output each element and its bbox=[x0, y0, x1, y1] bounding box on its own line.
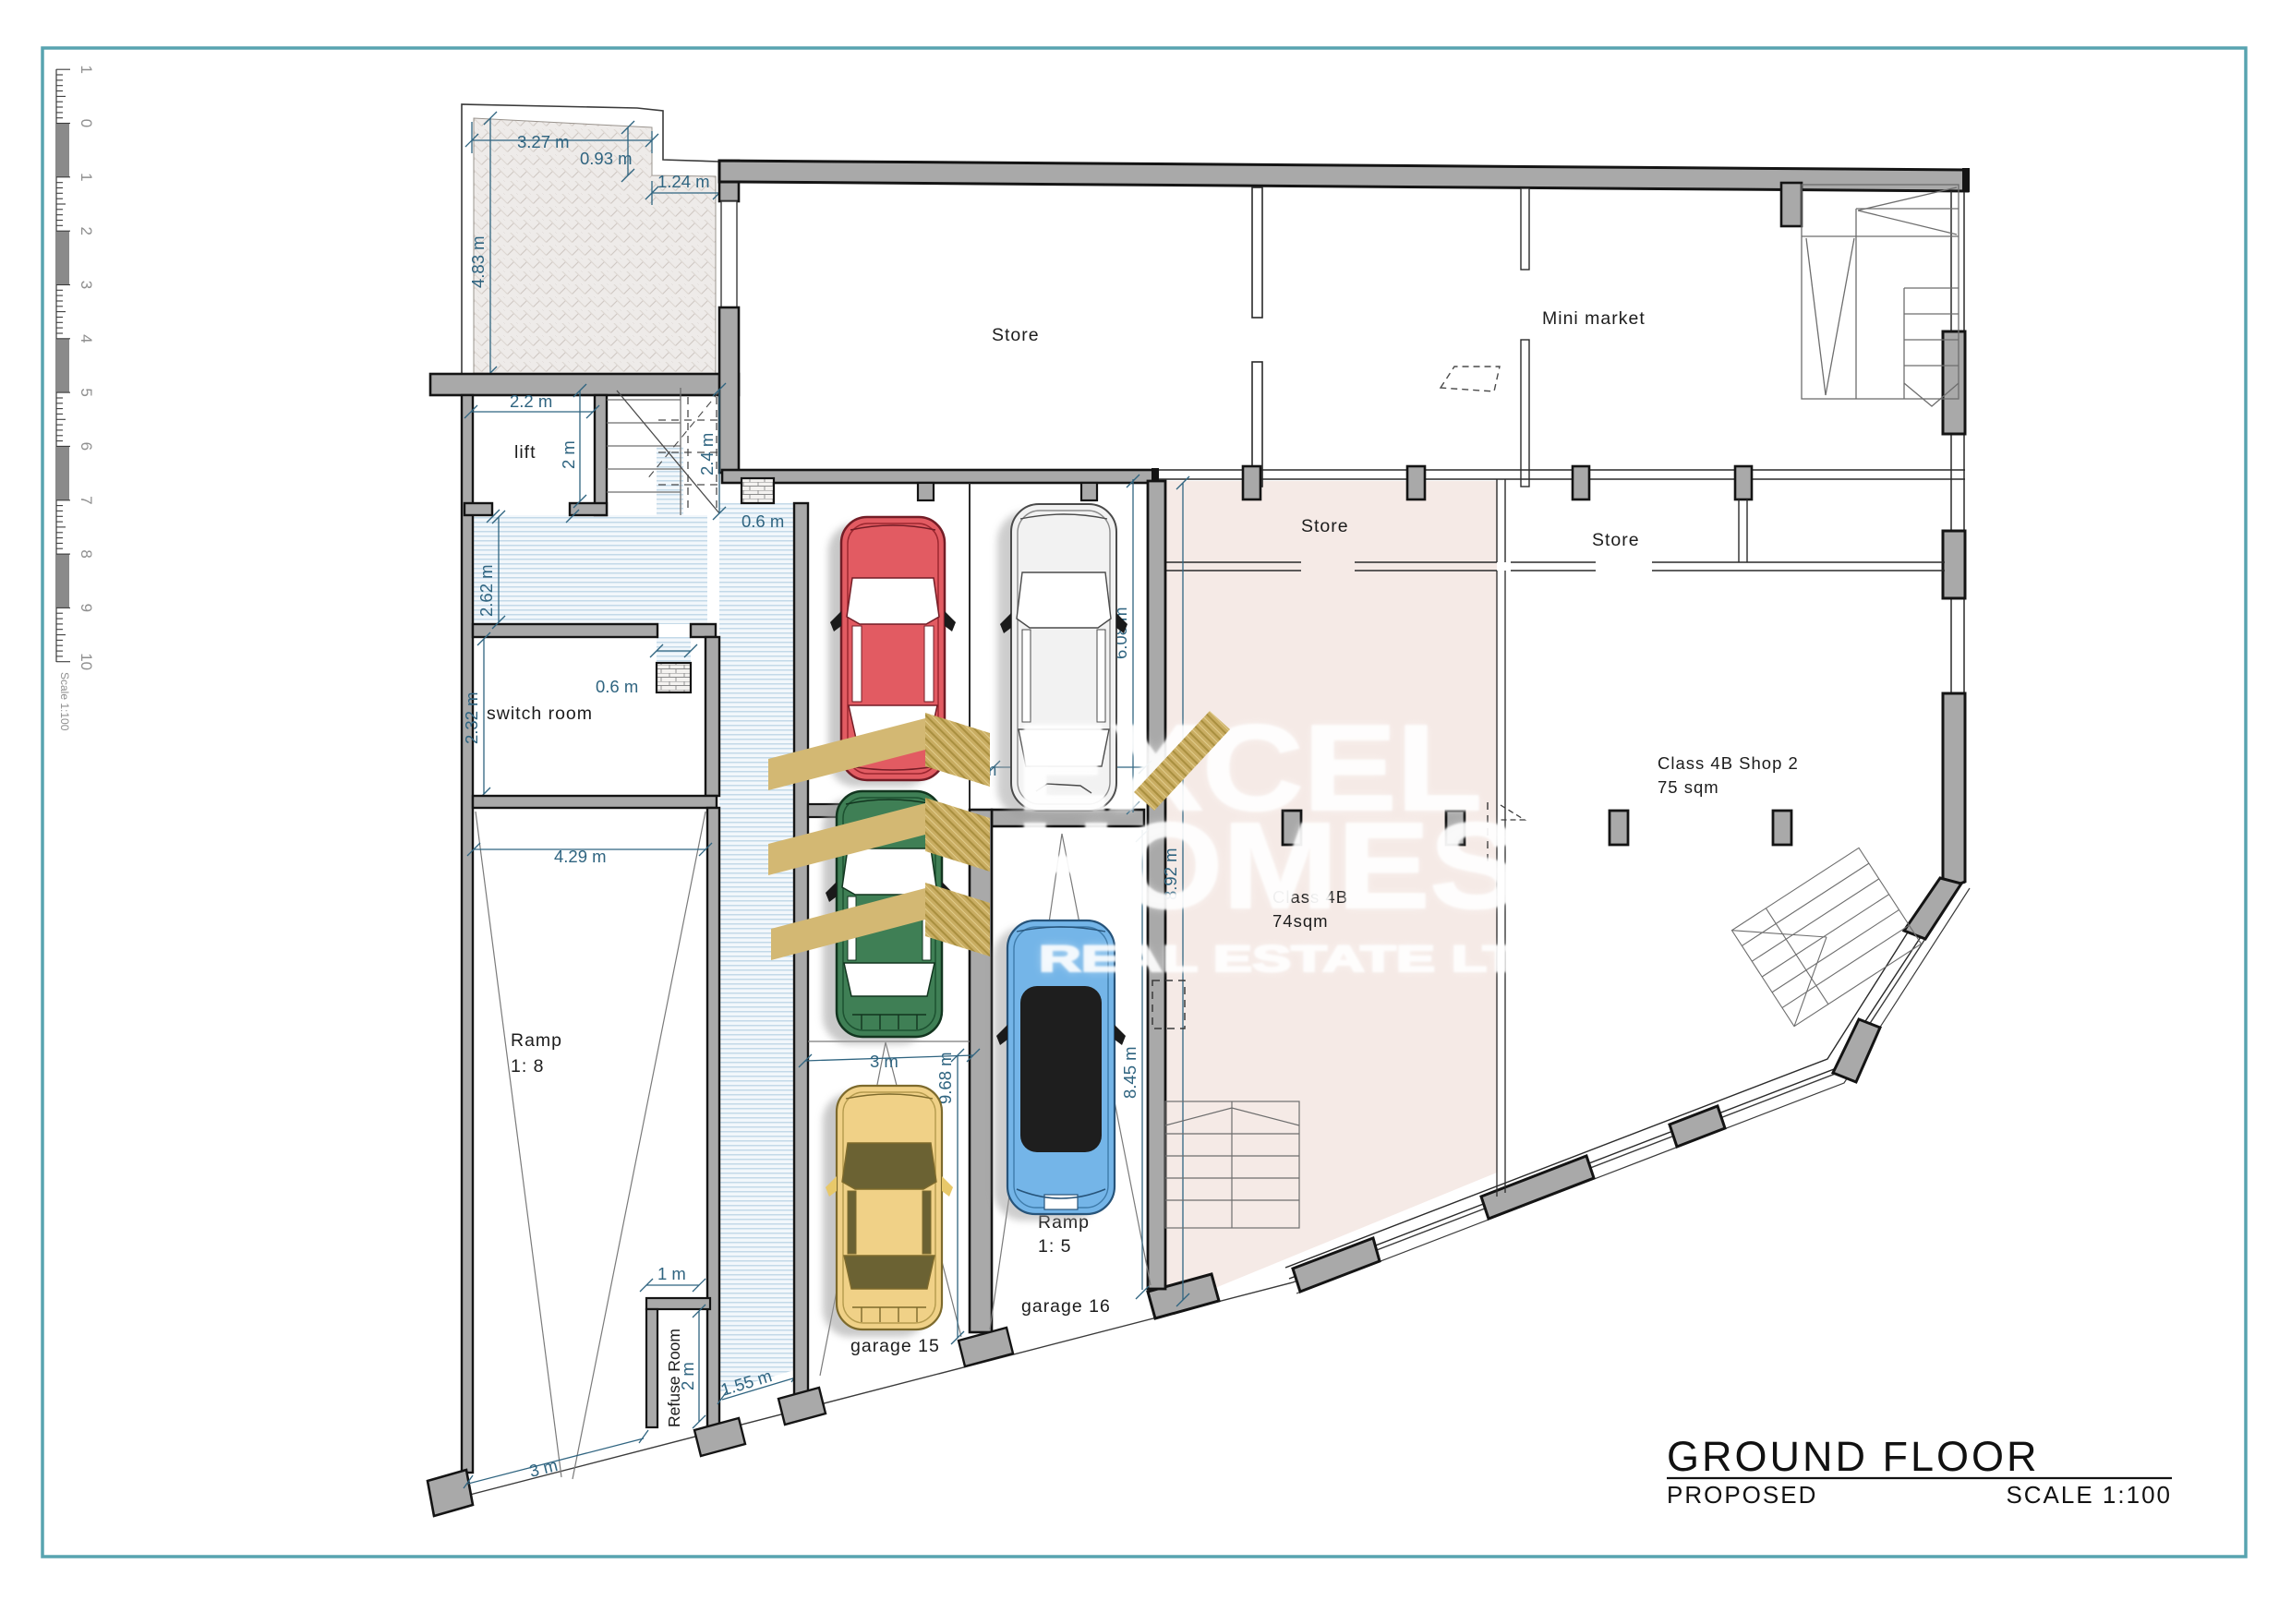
svg-text:1: 5: 1: 5 bbox=[1038, 1236, 1072, 1257]
svg-text:1 m: 1 m bbox=[657, 1264, 686, 1283]
svg-text:switch room: switch room bbox=[487, 704, 593, 724]
svg-text:3: 3 bbox=[78, 281, 95, 289]
svg-text:Store: Store bbox=[992, 325, 1040, 345]
svg-text:Class 4B Shop 2: Class 4B Shop 2 bbox=[1658, 753, 1799, 773]
svg-text:garage 15: garage 15 bbox=[850, 1336, 940, 1356]
svg-text:2.4 m: 2.4 m bbox=[697, 433, 717, 475]
svg-text:1: 8: 1: 8 bbox=[511, 1056, 545, 1077]
svg-text:2.2 m: 2.2 m bbox=[510, 391, 552, 411]
svg-text:2 m: 2 m bbox=[559, 440, 578, 469]
svg-text:7: 7 bbox=[78, 496, 95, 504]
svg-text:4.29 m: 4.29 m bbox=[554, 847, 607, 866]
svg-text:GROUND FLOOR: GROUND FLOOR bbox=[1667, 1433, 2040, 1480]
svg-text:Store: Store bbox=[1301, 516, 1349, 536]
svg-text:garage 16: garage 16 bbox=[1021, 1296, 1111, 1317]
svg-text:Store: Store bbox=[1592, 530, 1640, 550]
svg-text:2.32 m: 2.32 m bbox=[462, 692, 481, 744]
svg-text:0.6 m: 0.6 m bbox=[742, 511, 784, 531]
svg-text:4: 4 bbox=[78, 334, 95, 343]
svg-text:4.83 m: 4.83 m bbox=[468, 235, 488, 288]
svg-text:8: 8 bbox=[78, 549, 95, 558]
svg-text:2.62 m: 2.62 m bbox=[476, 564, 496, 617]
svg-text:8.45 m: 8.45 m bbox=[1120, 1046, 1139, 1099]
svg-text:HOMES: HOMES bbox=[1016, 798, 1522, 933]
svg-text:0.6 m: 0.6 m bbox=[596, 677, 638, 696]
svg-text:75 sqm: 75 sqm bbox=[1658, 777, 1719, 797]
svg-text:10: 10 bbox=[78, 653, 95, 670]
svg-text:3.27 m: 3.27 m bbox=[517, 132, 570, 151]
svg-text:6: 6 bbox=[78, 442, 95, 451]
svg-text:0.93 m: 0.93 m bbox=[580, 149, 633, 168]
svg-text:5: 5 bbox=[78, 388, 95, 396]
svg-text:1: 1 bbox=[78, 173, 95, 181]
svg-text:lift: lift bbox=[514, 442, 537, 463]
svg-text:2: 2 bbox=[78, 226, 95, 235]
svg-text:REAL ESTATE LTD: REAL ESTATE LTD bbox=[1039, 939, 1561, 980]
svg-text:Mini market: Mini market bbox=[1542, 308, 1646, 329]
svg-text:PROPOSED: PROPOSED bbox=[1667, 1481, 1817, 1509]
svg-text:9: 9 bbox=[78, 604, 95, 612]
svg-text:9.68 m: 9.68 m bbox=[935, 1052, 955, 1104]
svg-text:Ramp: Ramp bbox=[511, 1030, 562, 1051]
svg-text:3 m: 3 m bbox=[870, 1052, 898, 1071]
svg-text:1: 1 bbox=[78, 65, 95, 73]
svg-text:SCALE 1:100: SCALE 1:100 bbox=[2006, 1481, 2172, 1509]
svg-text:0: 0 bbox=[78, 119, 95, 127]
svg-text:Scale 1:100: Scale 1:100 bbox=[58, 672, 71, 731]
svg-text:2 m: 2 m bbox=[678, 1362, 697, 1390]
svg-text:1.24 m: 1.24 m bbox=[657, 172, 710, 191]
